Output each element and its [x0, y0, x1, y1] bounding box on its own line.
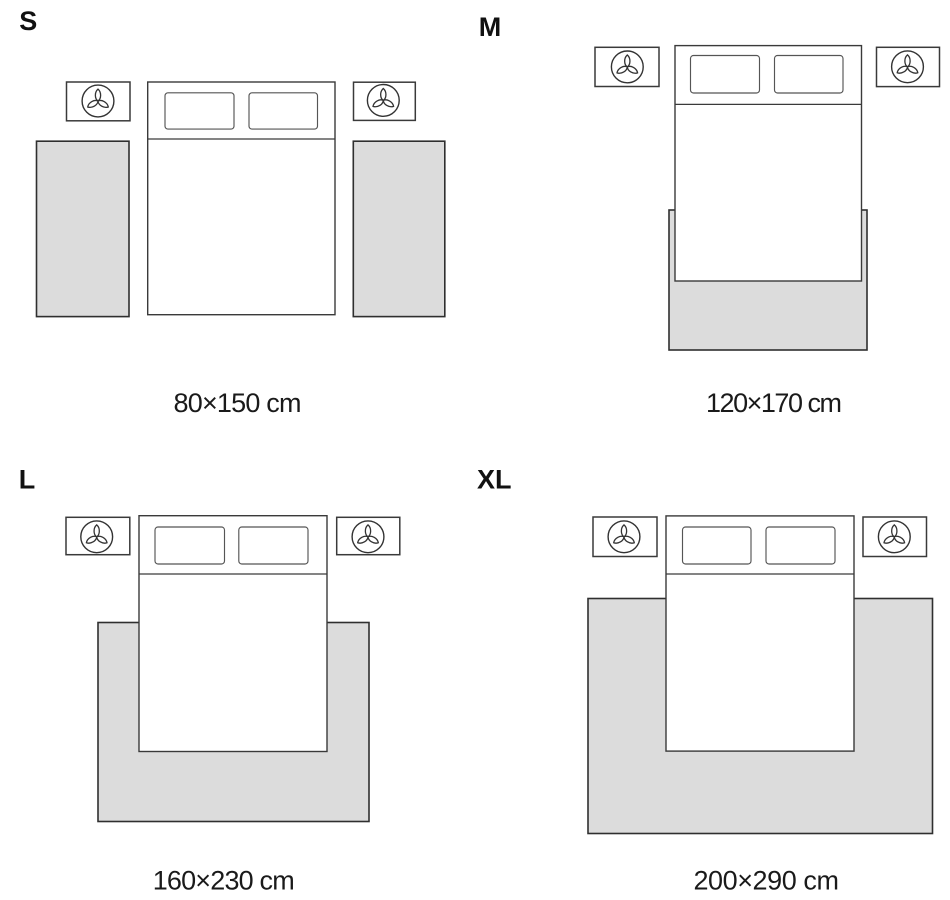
svg-text:120×170 cm: 120×170 cm: [706, 388, 842, 418]
svg-text:200×290 cm: 200×290 cm: [693, 866, 839, 896]
svg-text:L: L: [19, 464, 36, 494]
svg-text:XL: XL: [477, 465, 512, 495]
svg-text:80×150 cm: 80×150 cm: [174, 388, 302, 418]
svg-text:M: M: [479, 12, 502, 42]
svg-text:S: S: [19, 6, 37, 36]
svg-text:160×230 cm: 160×230 cm: [153, 866, 295, 896]
